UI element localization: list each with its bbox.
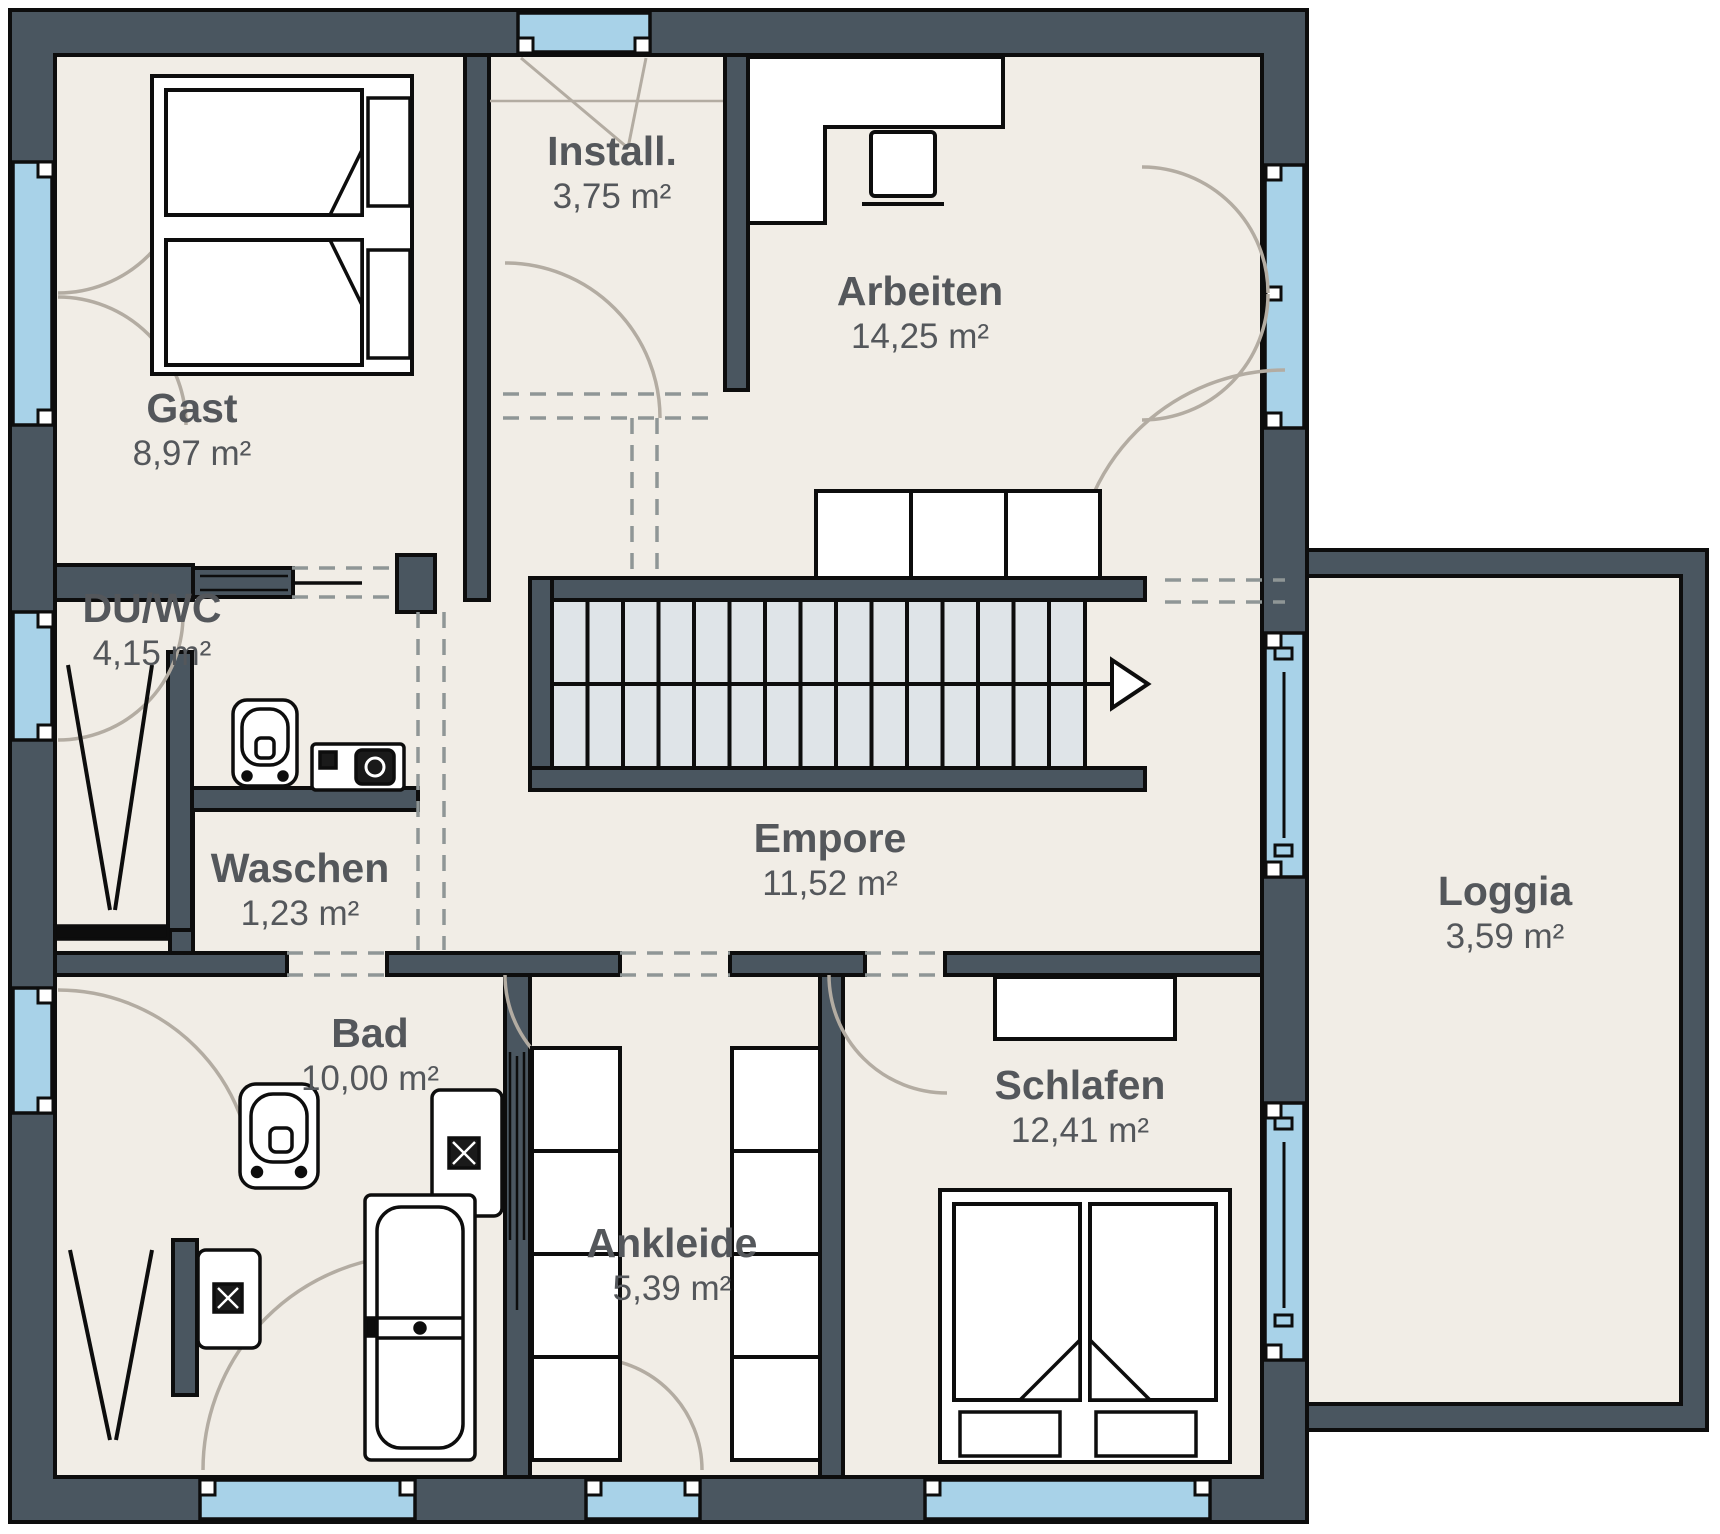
window-ankleide-south (586, 1480, 700, 1519)
wall-stair-bottom (530, 768, 1145, 790)
wall-south-seg2 (387, 953, 620, 975)
wall-install-arbeiten (725, 55, 748, 390)
wall-south-seg4 (945, 953, 1262, 975)
wall-bad-stub (173, 1240, 197, 1395)
staircase (552, 600, 1148, 768)
window-install (518, 13, 650, 52)
furniture-gast-beds (152, 76, 412, 374)
furniture-sideboard-empore (816, 491, 1100, 578)
wall-south-seg1 (55, 953, 287, 975)
wall-hall-pier (397, 555, 435, 612)
wall-south-seg3 (730, 953, 865, 975)
loggia-floor (1307, 576, 1681, 1404)
window-bad-south (200, 1480, 415, 1519)
wall-shower-partition (168, 652, 192, 930)
wall-gast-right (465, 55, 489, 600)
chair (871, 132, 935, 196)
window-gast (13, 162, 52, 425)
window-duwc (13, 612, 52, 740)
wall-stair-left (530, 578, 552, 790)
floorplan-canvas: Gast8,97 m² Install.3,75 m² Arbeiten14,2… (0, 0, 1720, 1534)
window-schlafen-south (925, 1480, 1210, 1519)
wall-gast-bottom (55, 565, 193, 600)
sideboard-schlafen (995, 977, 1175, 1039)
wall-stair-top (530, 578, 1145, 600)
window-bad (13, 988, 52, 1113)
floorplan-drawing (0, 0, 1720, 1534)
wall-ankleide-schlafen (820, 975, 843, 1477)
